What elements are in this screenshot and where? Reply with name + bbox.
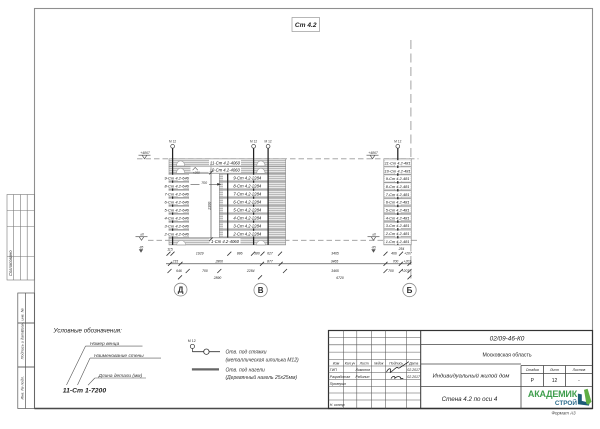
svg-text:Условные обозначения:: Условные обозначения: [53, 328, 123, 335]
svg-text:646: 646 [176, 269, 182, 273]
svg-text:700: 700 [202, 269, 208, 273]
svg-text:М 12: М 12 [188, 339, 196, 343]
svg-text:Листов: Листов [572, 368, 586, 372]
svg-text:700: 700 [393, 260, 399, 264]
svg-text:+260: +260 [193, 171, 200, 175]
svg-text:Рябинин: Рябинин [356, 375, 370, 379]
svg-text:Стена 4.2 по оси 4: Стена 4.2 по оси 4 [442, 396, 498, 403]
svg-text:3-Ст 4.2-2284: 3-Ст 4.2-2284 [233, 223, 262, 228]
svg-text:3465: 3465 [331, 269, 339, 273]
svg-text:Кол.уч: Кол.уч [345, 362, 356, 366]
svg-text:3465: 3465 [331, 260, 339, 264]
svg-text:Б: Б [407, 286, 413, 295]
svg-text:Н. контр: Н. контр [330, 403, 345, 407]
svg-text:Изм: Изм [333, 362, 340, 366]
svg-text:-85: -85 [371, 245, 376, 249]
svg-text:Дата: Дата [408, 362, 418, 366]
svg-text:(Деревянный нагель 25х25мм): (Деревянный нагель 25х25мм) [226, 374, 298, 381]
svg-text:8-Ст 4.2-646: 8-Ст 4.2-646 [164, 183, 189, 188]
svg-text:9-Ст 4.2-646: 9-Ст 4.2-646 [164, 175, 189, 180]
svg-text:10-Ст 4.2-4060: 10-Ст 4.2-4060 [210, 168, 241, 173]
svg-text:+207: +207 [403, 260, 411, 264]
svg-text:ГИП: ГИП [330, 368, 337, 372]
svg-text:2300: 2300 [208, 202, 212, 211]
svg-text:Отв. под стяжки: Отв. под стяжки [226, 349, 267, 355]
svg-text:4-Ст 4.2-2284: 4-Ст 4.2-2284 [233, 215, 262, 220]
svg-text:5-Ст 4.2-2284: 5-Ст 4.2-2284 [233, 207, 262, 212]
svg-text:2890: 2890 [213, 276, 222, 280]
svg-text:Д: Д [178, 286, 184, 295]
svg-text:Стадия: Стадия [526, 368, 539, 372]
svg-text:Лист: Лист [359, 362, 369, 366]
svg-text:±0: ±0 [372, 233, 376, 237]
svg-text:Отв. под нагели: Отв. под нагели [226, 367, 266, 373]
svg-text:М 12: М 12 [250, 140, 257, 144]
svg-text:Ст 4.2: Ст 4.2 [295, 22, 317, 29]
svg-text:1-Ст 4.2-481: 1-Ст 4.2-481 [386, 239, 410, 244]
svg-text:12: 12 [552, 378, 558, 384]
svg-text:+4867: +4867 [140, 151, 150, 155]
svg-text:115: 115 [167, 248, 173, 252]
svg-text:Лист: Лист [549, 368, 559, 372]
svg-text:СТРОЙ: СТРОЙ [555, 398, 578, 407]
svg-text:4-Ст 4.2-481: 4-Ст 4.2-481 [386, 215, 410, 220]
svg-text:Согласовано: Согласовано [8, 250, 13, 276]
svg-text:1929: 1929 [196, 251, 204, 255]
svg-text:6-Ст 4.2-481: 6-Ст 4.2-481 [386, 200, 410, 205]
svg-text:1-Ст 4.2-4060: 1-Ст 4.2-4060 [211, 239, 240, 244]
svg-text:№док: №док [374, 362, 384, 366]
svg-text:7-Ст 4.2-2284: 7-Ст 4.2-2284 [233, 191, 262, 196]
svg-text:627: 627 [267, 251, 273, 255]
svg-text:2284: 2284 [246, 269, 255, 273]
svg-text:Инв. № подл.: Инв. № подл. [20, 376, 24, 400]
svg-text:466: 466 [391, 251, 397, 255]
svg-text:+4867: +4867 [368, 151, 378, 155]
svg-text:-85: -85 [139, 245, 144, 249]
svg-text:М 12: М 12 [169, 140, 176, 144]
svg-text:4-Ст 4.2-646: 4-Ст 4.2-646 [164, 215, 189, 220]
svg-text:3-Ст 4.2-646: 3-Ст 4.2-646 [164, 223, 189, 228]
svg-text:(металлическая шпилька М12): (металлическая шпилька М12) [226, 357, 299, 363]
svg-text:+207: +207 [404, 251, 412, 255]
svg-text:5-Ст 4.2-481: 5-Ст 4.2-481 [386, 207, 410, 212]
svg-text:±0: ±0 [140, 233, 144, 237]
svg-text:Формат А3: Формат А3 [551, 410, 576, 415]
svg-text:11-Ст 1-7200: 11-Ст 1-7200 [63, 388, 107, 395]
svg-text:М 12: М 12 [265, 140, 272, 144]
svg-text:Лимонов: Лимонов [355, 368, 371, 372]
svg-text:5-Ст 4.2-646: 5-Ст 4.2-646 [164, 207, 189, 212]
svg-text:215: 215 [171, 260, 178, 264]
svg-text:8-Ст 4.2-481: 8-Ст 4.2-481 [386, 184, 410, 189]
svg-text:Подпись: Подпись [389, 362, 403, 366]
svg-text:Проверил: Проверил [330, 382, 346, 386]
svg-text:Разработал: Разработал [330, 375, 350, 379]
svg-text:Подпись и дата: Подпись и дата [20, 331, 24, 360]
svg-text:6-Ст 4.2-646: 6-Ст 4.2-646 [164, 199, 189, 204]
svg-text:2800: 2800 [215, 260, 224, 264]
svg-text:7-Ст 4.2-481: 7-Ст 4.2-481 [386, 192, 410, 197]
svg-text:02.2017: 02.2017 [407, 368, 421, 372]
svg-text:6720: 6720 [336, 276, 344, 280]
svg-text:Взам. инв. №: Взам. инв. № [20, 308, 24, 331]
svg-text:3-Ст 4.2-481: 3-Ст 4.2-481 [386, 223, 410, 228]
svg-text:7-Ст 4.2-646: 7-Ст 4.2-646 [164, 191, 189, 196]
svg-text:02.2017: 02.2017 [407, 375, 421, 379]
svg-text:877: 877 [267, 260, 273, 264]
svg-text:700: 700 [388, 269, 394, 273]
svg-text:В: В [258, 286, 264, 295]
svg-text:10-Ст 4.2-481: 10-Ст 4.2-481 [385, 168, 411, 173]
svg-text:2-Ст 4.2-2284: 2-Ст 4.2-2284 [232, 231, 262, 236]
svg-text:6-Ст 4.2-2284: 6-Ст 4.2-2284 [233, 199, 262, 204]
svg-text:3465: 3465 [331, 251, 339, 255]
svg-text:700: 700 [201, 181, 207, 185]
svg-text:Московская область: Московская область [482, 353, 531, 359]
svg-text:9-Ст 4.2-481: 9-Ст 4.2-481 [386, 176, 410, 181]
svg-text:8-Ст 4.2-2284: 8-Ст 4.2-2284 [233, 183, 262, 188]
svg-text:2-Ст 4.2-481: 2-Ст 4.2-481 [385, 231, 410, 236]
svg-text:02/09-46-К0: 02/09-46-К0 [490, 335, 525, 342]
svg-text:М 12: М 12 [394, 140, 401, 144]
svg-text:9-Ст 4.2-2284: 9-Ст 4.2-2284 [233, 175, 262, 180]
svg-text:2-Ст 4.2-646: 2-Ст 4.2-646 [163, 231, 189, 236]
svg-text:11-Ст 4.2-481: 11-Ст 4.2-481 [385, 161, 411, 166]
svg-text:АКАДЕМИК: АКАДЕМИК [528, 389, 578, 399]
svg-text:886: 886 [237, 251, 243, 255]
svg-text:11-Ст 4.2-4060: 11-Ст 4.2-4060 [210, 160, 241, 165]
svg-text:Индивидуальный жилой дом: Индивидуальный жилой дом [433, 373, 510, 380]
